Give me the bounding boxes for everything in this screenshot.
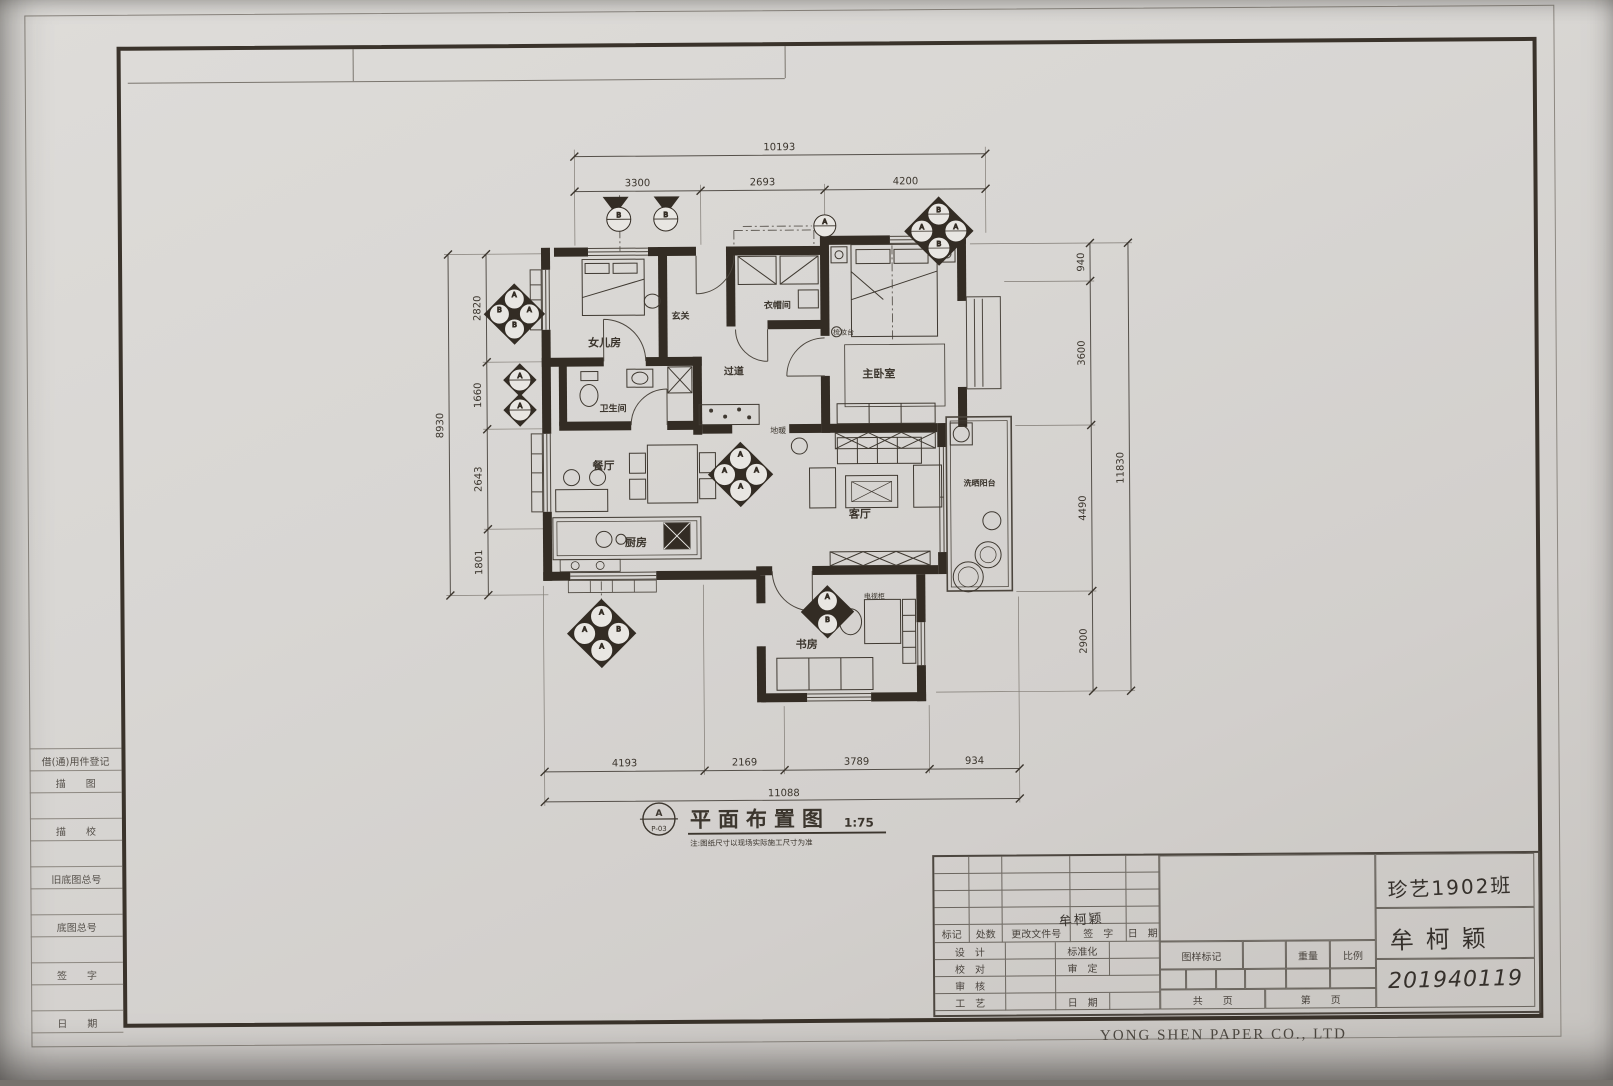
tb-cell (1286, 968, 1330, 988)
tb-row-standardize: 标准化 (1056, 942, 1110, 959)
room-label-kitchen: 厨房 (625, 535, 647, 549)
tb-page-no: 第 页 (1265, 988, 1376, 1009)
dim-left-d: 1801 (474, 550, 485, 576)
sidebar-trace-draw-label: 描 图 (56, 774, 96, 789)
elevation-marker-letter: A (738, 482, 743, 490)
sidebar-register: 借(通)用件登记 (29, 748, 121, 772)
dim-top-a: 3300 (625, 178, 651, 189)
elevation-marker-letter: A (527, 306, 532, 314)
elevation-marker: A (504, 364, 536, 396)
sidebar-empty-2 (30, 840, 122, 868)
room-label-daughter: 女儿房 (588, 335, 621, 349)
tb-cell (1110, 993, 1160, 1010)
handwritten-author: 牟柯颖 (1389, 918, 1498, 956)
title-block-approval-grid: 设 计 标准化 校 对 审 定 审 核 工 艺 日 期 (935, 942, 1160, 1012)
label-dressing-table: 梳妆台 (833, 328, 854, 337)
tb-cell (1330, 968, 1376, 988)
top-strip-divider-2 (785, 46, 786, 78)
dim-top-c: 4200 (893, 176, 919, 187)
elevation-marker-letter: B (512, 321, 517, 329)
tb-cell (969, 874, 1002, 891)
elevation-marker: A A B A (567, 599, 635, 667)
tb-cell (1243, 941, 1286, 969)
tb-cell (1126, 856, 1159, 873)
tb-weight: 重量 (1286, 940, 1330, 968)
tb-cell (1110, 959, 1160, 976)
room-label-living: 客厅 (848, 507, 871, 521)
dim-left-b: 1660 (473, 383, 484, 409)
label-tv-cabinet: 电视柜 (864, 591, 885, 600)
dim-left-total: 8930 (435, 413, 446, 439)
detail-circle-marker: A (814, 215, 836, 237)
plan-title-group: A P-03 平面布置图 1:75 注:图纸尺寸以现场实际施工尺寸为准 (640, 801, 886, 848)
room-label-cloakroom: 衣帽间 (764, 299, 791, 311)
tb-cell (1245, 969, 1286, 989)
plan-title-note: 注:图纸尺寸以现场实际施工尺寸为准 (690, 837, 813, 848)
tb-row-proofread: 校 对 (935, 960, 1006, 977)
room-label-balcony: 洗晒阳台 (964, 478, 996, 488)
elevation-marker: A B (801, 586, 853, 638)
plan-title-tag-letter: A (655, 809, 662, 819)
dim-right-d: 2900 (1079, 628, 1090, 654)
dim-bottom-a: 4193 (612, 758, 638, 769)
label-floor-heating: 地暖 (770, 425, 786, 435)
room-label-bathroom: 卫生间 (600, 402, 627, 414)
tb-cell (934, 857, 969, 874)
tb-cell (935, 908, 970, 925)
tb-drawing-mark: 图样标记 (1160, 941, 1243, 970)
dim-right-b: 3600 (1077, 340, 1088, 366)
tb-cell (1002, 856, 1070, 873)
plan-title-scale: 1:75 (844, 816, 874, 830)
dim-right-c: 4490 (1078, 495, 1089, 521)
dim-right-total: 11830 (1115, 452, 1126, 484)
room-label-hallway: 过道 (724, 364, 744, 377)
sidebar-old-base-no: 旧底图总号 (30, 866, 122, 890)
tb-cell (1186, 969, 1216, 989)
room-label-master: 主卧室 (862, 366, 895, 380)
elevation-marker-letter: B (616, 625, 621, 633)
elevation-marker: A B A B (484, 284, 544, 344)
handwritten-class-name: 珍艺1902班 (1387, 869, 1513, 903)
tb-cell (1126, 890, 1159, 907)
room-label-dining: 餐厅 (591, 458, 614, 472)
sidebar-old-base-no-label: 旧底图总号 (51, 870, 101, 885)
top-strip-divider-1 (353, 49, 354, 81)
elevation-marker-letter: B (936, 206, 941, 214)
sidebar-base-no-label: 底图总号 (57, 918, 97, 933)
dim-bottom-c: 3789 (844, 757, 870, 768)
sidebar-register-label: 借(通)用件登记 (42, 752, 110, 767)
tb-cell (1006, 942, 1056, 959)
tb-cell (1006, 976, 1056, 993)
section-marker-letter: B (663, 211, 668, 219)
tb-header-mark: 标记 (935, 925, 970, 943)
dim-bottom-b: 2169 (732, 757, 758, 768)
sidebar-empty-3 (30, 888, 122, 916)
elevation-marker-letter: A (919, 223, 924, 231)
dim-bottom-d: 934 (965, 756, 984, 767)
tb-scale: 比例 (1330, 940, 1376, 968)
tb-row-review: 审 核 (935, 977, 1006, 994)
tb-cell (1160, 969, 1186, 989)
tb-cell (1127, 907, 1160, 924)
tb-cell (934, 891, 969, 908)
elevation-marker-letter: A (599, 608, 604, 616)
plan-title-text: 平面布置图 (690, 807, 830, 832)
tb-pages-total: 共 页 (1160, 989, 1265, 1010)
elevation-marker-letter: A (512, 291, 517, 299)
room-label-study: 书房 (796, 637, 818, 651)
tb-cell (1126, 873, 1159, 890)
tb-cell (1006, 993, 1056, 1010)
tb-header-date: 日 期 (1127, 924, 1160, 942)
room-labels: 女儿房 玄关 衣帽间 过道 卫生间 餐厅 厨房 客厅 主卧室 书房 洗晒阳台 地… (588, 298, 997, 653)
tb-cell (1006, 959, 1056, 976)
elevation-marker-letter: A (738, 450, 743, 458)
photo-backdrop: 借(通)用件登记 描 图 描 校 旧底图总号 底图总号 签 字 日 期 (0, 0, 1613, 1080)
elevation-marker-letter: A (518, 402, 523, 410)
elevation-marker-letter: A (722, 467, 727, 475)
elevation-marker-letter: A (825, 593, 830, 601)
tb-row-approve: 审 定 (1056, 959, 1110, 976)
tb-cell (970, 908, 1003, 925)
elevation-marker-letter: A (517, 372, 522, 380)
elevation-marker-letter: A (953, 223, 958, 231)
sidebar-base-no: 底图总号 (31, 914, 123, 938)
tb-row-craft: 工 艺 (935, 994, 1006, 1011)
tb-cell (1056, 976, 1160, 994)
handwritten-signature: 牟柯颖 (1058, 907, 1104, 929)
elevation-marker: A A A A (708, 442, 772, 506)
sidebar-empty-5 (31, 984, 123, 1012)
tb-cell (934, 874, 969, 891)
title-block-revision-grid: 标记 处数 更改文件号 签 字 日 期 (934, 856, 1160, 944)
sidebar-trace-check-label: 描 校 (56, 822, 96, 837)
tb-cell (1002, 890, 1070, 907)
tb-cell (969, 891, 1002, 908)
drafting-sheet: 借(通)用件登记 描 图 描 校 旧底图总号 底图总号 签 字 日 期 (0, 0, 1613, 1086)
dim-labels: 10193 3300 2693 4200 8930 2820 1660 2643… (433, 140, 1129, 802)
tb-cell (1070, 890, 1126, 907)
section-marker: B (604, 197, 631, 231)
tb-cell (969, 857, 1002, 874)
tb-cell (1216, 969, 1245, 989)
sidebar-empty-6 (31, 1032, 123, 1047)
sidebar-date: 日 期 (31, 1010, 123, 1034)
tb-row-design: 设 计 (935, 943, 1006, 960)
dim-bottom-total: 11088 (768, 788, 800, 799)
tb-row-date: 日 期 (1056, 993, 1110, 1010)
section-marker: B (654, 197, 679, 231)
paper-manufacturer: YONG SHEN PAPER CO., LTD (1083, 1026, 1363, 1045)
sidebar-empty-1 (30, 792, 122, 820)
elevation-marker-letter: B (825, 616, 830, 624)
guide-lines (599, 193, 895, 617)
dim-left-a: 2820 (472, 296, 483, 322)
sidebar-sign-label: 签 字 (57, 966, 97, 981)
elevation-marker-letter: B (497, 306, 502, 314)
elevation-marker-letter: A (582, 626, 587, 634)
sidebar-trace-check: 描 校 (30, 818, 122, 842)
tb-cell (1070, 856, 1126, 873)
dim-top-total: 10193 (763, 142, 795, 153)
detail-circle-letter: A (822, 218, 827, 226)
elevation-marker-letter: A (599, 642, 604, 650)
sidebar-trace-draw: 描 图 (30, 770, 122, 794)
dim-top-b: 2693 (750, 177, 776, 188)
tb-header-count: 处数 (970, 925, 1003, 943)
sidebar-date-label: 日 期 (57, 1014, 97, 1029)
dim-left-c: 2643 (473, 467, 484, 493)
tb-cell (1070, 873, 1126, 890)
room-label-entry: 玄关 (671, 310, 689, 322)
plan-title-tag-code: P-03 (651, 825, 667, 833)
handwritten-student-id: 201940119 (1388, 966, 1524, 994)
section-marker-letter: B (616, 211, 621, 219)
tb-empty-area (1159, 854, 1376, 942)
elevation-marker-letter: A (754, 466, 759, 474)
elevation-marker-letter: B (937, 240, 942, 248)
floor-plan-svg: 10193 3300 2693 4200 8930 2820 1660 2643… (417, 128, 1162, 873)
sidebar-sign: 签 字 (31, 962, 123, 986)
sidebar-empty-4 (31, 936, 123, 964)
elevation-marker: A (504, 394, 536, 426)
tb-cell (1110, 942, 1160, 959)
dim-right-a: 940 (1076, 252, 1087, 271)
tb-cell (1002, 873, 1070, 890)
